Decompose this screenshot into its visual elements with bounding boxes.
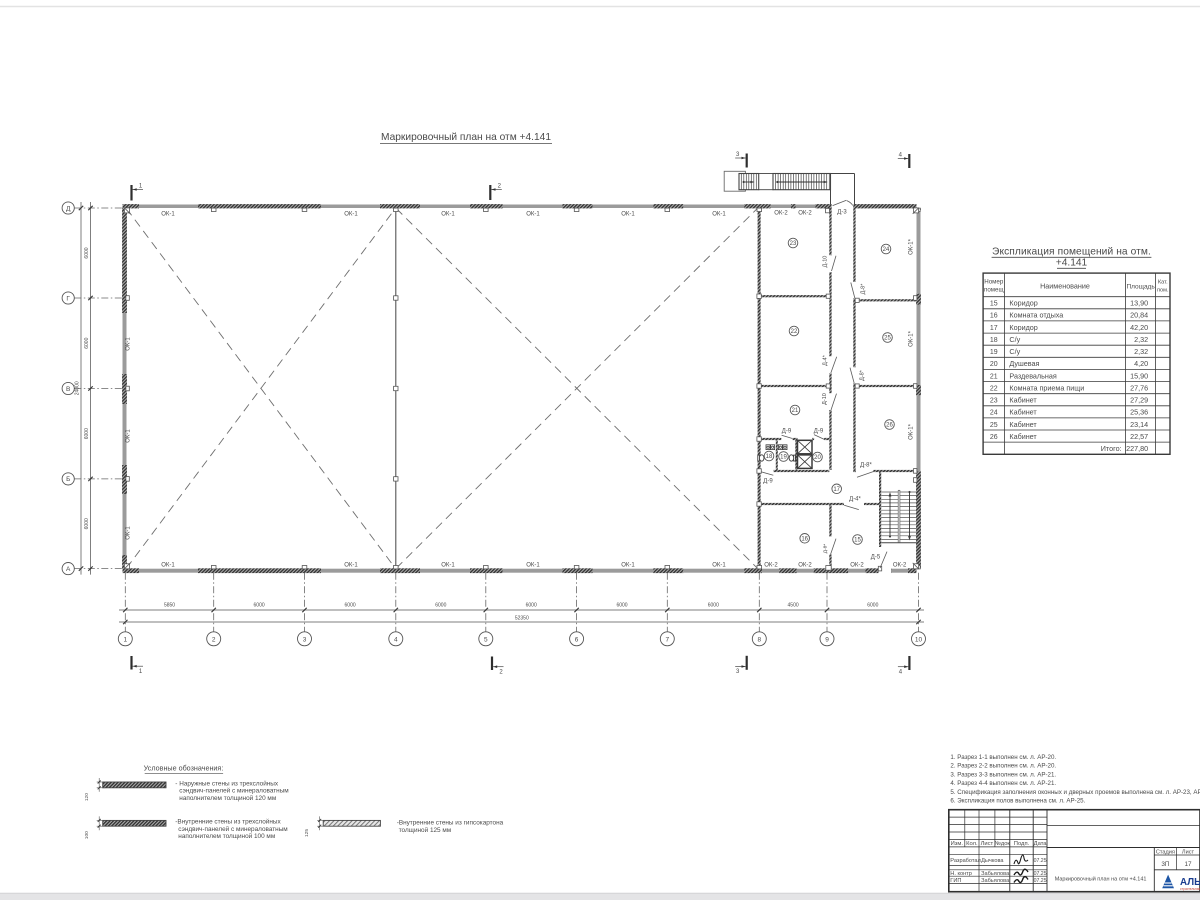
svg-text:Экспликация помещений на отм.: Экспликация помещений на отм. <box>992 247 1151 258</box>
svg-text:20: 20 <box>990 361 998 368</box>
svg-text:6000: 6000 <box>708 603 719 609</box>
svg-text:Душевая: Душевая <box>1009 359 1039 368</box>
svg-text:7: 7 <box>665 636 669 643</box>
svg-text:6000: 6000 <box>435 603 446 609</box>
svg-text:22,57: 22,57 <box>1130 432 1148 441</box>
svg-text:ОК-1: ОК-1 <box>621 212 635 218</box>
svg-text:9: 9 <box>825 636 829 643</box>
svg-text:ОК-1: ОК-1 <box>526 563 540 569</box>
svg-text:21: 21 <box>792 408 799 414</box>
svg-text:Кат.: Кат. <box>1158 279 1168 285</box>
svg-text:Д-9: Д-9 <box>814 429 824 435</box>
svg-text:Забьялова: Забьялова <box>981 878 1010 884</box>
svg-text:Д-10: Д-10 <box>823 256 829 268</box>
svg-text:2. Разрез 2-2 выполнен см. л.: 2. Разрез 2-2 выполнен см. л. АР-20. <box>950 763 1056 770</box>
svg-text:ОК-1: ОК-1 <box>712 563 726 569</box>
svg-text:Кабинет: Кабинет <box>1009 420 1037 429</box>
svg-text:ОК-1: ОК-1 <box>344 212 358 218</box>
svg-text:Н. контр: Н. контр <box>950 871 972 877</box>
svg-text:ОК-1: ОК-1 <box>526 212 540 218</box>
svg-text:- Наружные стены из трехслойны: - Наружные стены из трехслойных <box>175 779 279 787</box>
svg-text:17: 17 <box>990 325 998 332</box>
svg-text:ОК-2: ОК-2 <box>893 563 907 569</box>
svg-text:ОК-1: ОК-1 <box>712 212 726 218</box>
svg-text:20: 20 <box>814 455 821 461</box>
svg-text:23,14: 23,14 <box>1130 420 1148 429</box>
svg-text:15,90: 15,90 <box>1130 371 1148 380</box>
svg-text:Лист: Лист <box>981 841 994 847</box>
svg-text:Лист: Лист <box>1182 849 1195 855</box>
svg-text:Коридор: Коридор <box>1009 323 1037 332</box>
svg-text:ОК-1*: ОК-1* <box>908 238 914 254</box>
svg-text:100: 100 <box>84 831 90 839</box>
svg-text:Изм.: Изм. <box>951 841 964 847</box>
svg-text:наполнителем толщиной 100 мм: наполнителем толщиной 100 мм <box>178 832 275 840</box>
svg-text:ОК-1: ОК-1 <box>126 429 132 443</box>
svg-text:Д-9: Д-9 <box>782 429 792 435</box>
svg-text:24: 24 <box>990 410 998 417</box>
svg-text:125: 125 <box>304 829 310 837</box>
svg-text:Подп.: Подп. <box>1014 841 1030 847</box>
svg-text:6000: 6000 <box>345 603 356 609</box>
svg-text:Комната приема пищи: Комната приема пищи <box>1009 383 1084 392</box>
svg-text:5850: 5850 <box>164 603 175 609</box>
svg-text:1. Разрез 1-1 выполнен см. л.: 1. Разрез 1-1 выполнен см. л. АР-20. <box>950 754 1056 761</box>
svg-text:23: 23 <box>990 398 998 405</box>
svg-text:25: 25 <box>990 422 998 429</box>
svg-text:6000: 6000 <box>84 337 90 348</box>
svg-text:ОК-1*: ОК-1* <box>908 423 914 439</box>
svg-text:6000: 6000 <box>254 603 265 609</box>
svg-text:6000: 6000 <box>526 603 537 609</box>
svg-text:4,20: 4,20 <box>1134 359 1148 368</box>
svg-text:ОК-1: ОК-1 <box>126 337 132 351</box>
svg-text:6000: 6000 <box>616 603 627 609</box>
svg-text:№док: №док <box>995 841 1011 847</box>
svg-text:ОК-1: ОК-1 <box>344 563 358 569</box>
svg-text:Забьялова: Забьялова <box>981 871 1010 877</box>
svg-text:1: 1 <box>123 636 127 643</box>
svg-text:ОК-1*: ОК-1* <box>908 330 914 346</box>
svg-text:18: 18 <box>990 337 998 344</box>
svg-text:4: 4 <box>394 636 398 643</box>
svg-text:8: 8 <box>757 636 761 643</box>
svg-text:6000: 6000 <box>84 518 90 529</box>
svg-text:ОК-1: ОК-1 <box>161 212 175 218</box>
svg-text:пом.: пом. <box>1157 287 1169 293</box>
svg-text:Разработал: Разработал <box>950 858 980 864</box>
svg-text:Д-5: Д-5 <box>871 555 881 561</box>
svg-text:Комната отдыха: Комната отдыха <box>1009 311 1063 320</box>
svg-text:25: 25 <box>884 336 891 342</box>
svg-text:16: 16 <box>990 313 998 320</box>
svg-text:07.25: 07.25 <box>1034 858 1047 864</box>
svg-text:10: 10 <box>915 636 923 643</box>
svg-text:А: А <box>66 566 71 573</box>
svg-text:22: 22 <box>791 329 798 335</box>
svg-text:42,20: 42,20 <box>1130 323 1148 332</box>
svg-text:52350: 52350 <box>515 615 529 621</box>
svg-text:Д-8*: Д-8* <box>860 463 872 469</box>
svg-text:17: 17 <box>833 487 840 493</box>
svg-text:2: 2 <box>212 636 216 643</box>
svg-text:16: 16 <box>801 536 808 542</box>
svg-text:Б: Б <box>66 476 70 483</box>
svg-text:Площадь: Площадь <box>1126 283 1155 290</box>
svg-text:+4.141: +4.141 <box>1056 258 1088 269</box>
svg-text:наполнителем толщиной 120 мм: наполнителем толщиной 120 мм <box>179 794 276 802</box>
svg-text:2,32: 2,32 <box>1134 335 1148 344</box>
svg-text:3П: 3П <box>1161 861 1170 868</box>
svg-text:Коридор: Коридор <box>1009 299 1037 308</box>
svg-text:20,84: 20,84 <box>1130 311 1148 320</box>
svg-text:3. Разрез 3-3 выполнен см. л.: 3. Разрез 3-3 выполнен см. л. АР-21. <box>950 771 1056 778</box>
svg-text:-Внутренние стены из трехслойн: -Внутренние стены из трехслойных <box>175 818 281 826</box>
svg-text:Кабинет: Кабинет <box>1009 432 1037 441</box>
svg-text:ГИП: ГИП <box>950 878 961 884</box>
svg-text:ОК-1: ОК-1 <box>621 563 635 569</box>
svg-text:помещ: помещ <box>984 286 1004 293</box>
svg-text:Д-8*: Д-8* <box>823 544 829 554</box>
svg-text:22: 22 <box>990 385 998 392</box>
svg-text:15: 15 <box>990 301 998 308</box>
svg-text:26: 26 <box>886 423 893 429</box>
svg-text:Д-8*: Д-8* <box>861 283 867 295</box>
svg-text:07.25: 07.25 <box>1034 871 1047 877</box>
svg-text:ОК-2: ОК-2 <box>764 563 778 569</box>
svg-text:13,90: 13,90 <box>1130 299 1148 308</box>
svg-text:26: 26 <box>990 434 998 441</box>
svg-text:6000: 6000 <box>84 428 90 439</box>
svg-text:23: 23 <box>790 241 797 247</box>
svg-text:27,76: 27,76 <box>1130 383 1148 392</box>
svg-text:5: 5 <box>484 636 488 643</box>
svg-text:С/у: С/у <box>1009 347 1020 356</box>
svg-text:07.25: 07.25 <box>1034 878 1047 884</box>
svg-text:24: 24 <box>883 247 890 253</box>
svg-text:сэндвич-панелей с минераловатн: сэндвич-панелей с минераловатным <box>179 787 288 795</box>
svg-text:Д-4*: Д-4* <box>849 497 861 503</box>
svg-text:4500: 4500 <box>788 603 799 609</box>
svg-text:С/у: С/у <box>1009 335 1020 344</box>
svg-text:ОК-2: ОК-2 <box>798 563 812 569</box>
svg-text:Д-8*: Д-8* <box>860 369 866 381</box>
svg-text:Наименование: Наименование <box>1040 281 1090 290</box>
svg-text:Д-3: Д-3 <box>837 210 847 216</box>
svg-text:ОК-1: ОК-1 <box>441 212 455 218</box>
svg-text:Д-9: Д-9 <box>763 479 773 485</box>
svg-text:24000: 24000 <box>74 381 80 395</box>
svg-text:Условные обозначения:: Условные обозначения: <box>144 764 224 773</box>
svg-text:6. Экспликация полов выполнена: 6. Экспликация полов выполнена см. л. АР… <box>950 798 1085 805</box>
svg-text:Г: Г <box>66 295 70 302</box>
svg-text:Кол.: Кол. <box>966 841 978 847</box>
svg-text:сэндвич-панелей с минераловатн: сэндвич-панелей с минераловатным <box>178 825 287 833</box>
svg-text:Кабинет: Кабинет <box>1009 396 1037 405</box>
svg-text:21: 21 <box>990 373 998 380</box>
svg-text:17: 17 <box>1184 861 1192 868</box>
svg-text:Д-4*: Д-4* <box>823 354 829 366</box>
svg-text:Кабинет: Кабинет <box>1009 408 1037 417</box>
svg-text:В: В <box>66 386 70 393</box>
svg-text:Маркировочный план на отм +4.1: Маркировочный план на отм +4.141 <box>1055 876 1147 883</box>
svg-text:ОК-1: ОК-1 <box>161 563 175 569</box>
svg-text:Маркировочный план на отм +4.1: Маркировочный план на отм +4.141 <box>381 132 551 143</box>
svg-text:ОК-2: ОК-2 <box>798 211 812 217</box>
svg-text:6: 6 <box>575 636 579 643</box>
svg-text:Стадия: Стадия <box>1156 849 1175 855</box>
svg-text:4. Разрез 4-4 выполнен см. л.: 4. Разрез 4-4 выполнен см. л. АР-21. <box>950 780 1056 787</box>
svg-text:Итого:: Итого: <box>1101 444 1122 453</box>
svg-text:18: 18 <box>766 454 773 460</box>
svg-text:19: 19 <box>780 455 787 461</box>
svg-text:227,80: 227,80 <box>1126 444 1148 453</box>
svg-text:Дата: Дата <box>1034 841 1048 847</box>
svg-text:толщиной 125 мм: толщиной 125 мм <box>399 826 451 834</box>
svg-text:120: 120 <box>84 793 90 801</box>
svg-text:ОК-1: ОК-1 <box>126 526 132 540</box>
svg-text:6000: 6000 <box>84 247 90 258</box>
svg-text:19: 19 <box>990 349 998 356</box>
svg-text:5. Спецификация заполнения око: 5. Спецификация заполнения оконных и две… <box>950 789 1200 796</box>
svg-text:строительная: строительная <box>1180 887 1200 891</box>
svg-text:15: 15 <box>854 538 861 544</box>
svg-text:Дычкова: Дычкова <box>981 858 1004 864</box>
svg-text:3: 3 <box>303 636 307 643</box>
svg-text:Д: Д <box>66 205 71 212</box>
svg-text:ОК-1: ОК-1 <box>441 563 455 569</box>
svg-text:27,29: 27,29 <box>1130 396 1148 405</box>
svg-text:Д-10: Д-10 <box>822 393 828 405</box>
svg-text:ОК-2: ОК-2 <box>774 211 788 217</box>
svg-text:-Внутренние стены из гипсокарт: -Внутренние стены из гипсокартона <box>397 820 504 827</box>
svg-text:2,32: 2,32 <box>1134 347 1148 356</box>
svg-text:25,36: 25,36 <box>1130 408 1148 417</box>
svg-text:Раздевальная: Раздевальная <box>1009 371 1056 380</box>
svg-text:Номер: Номер <box>984 278 1004 285</box>
svg-text:6000: 6000 <box>867 603 878 609</box>
svg-text:ОК-2: ОК-2 <box>850 563 864 569</box>
